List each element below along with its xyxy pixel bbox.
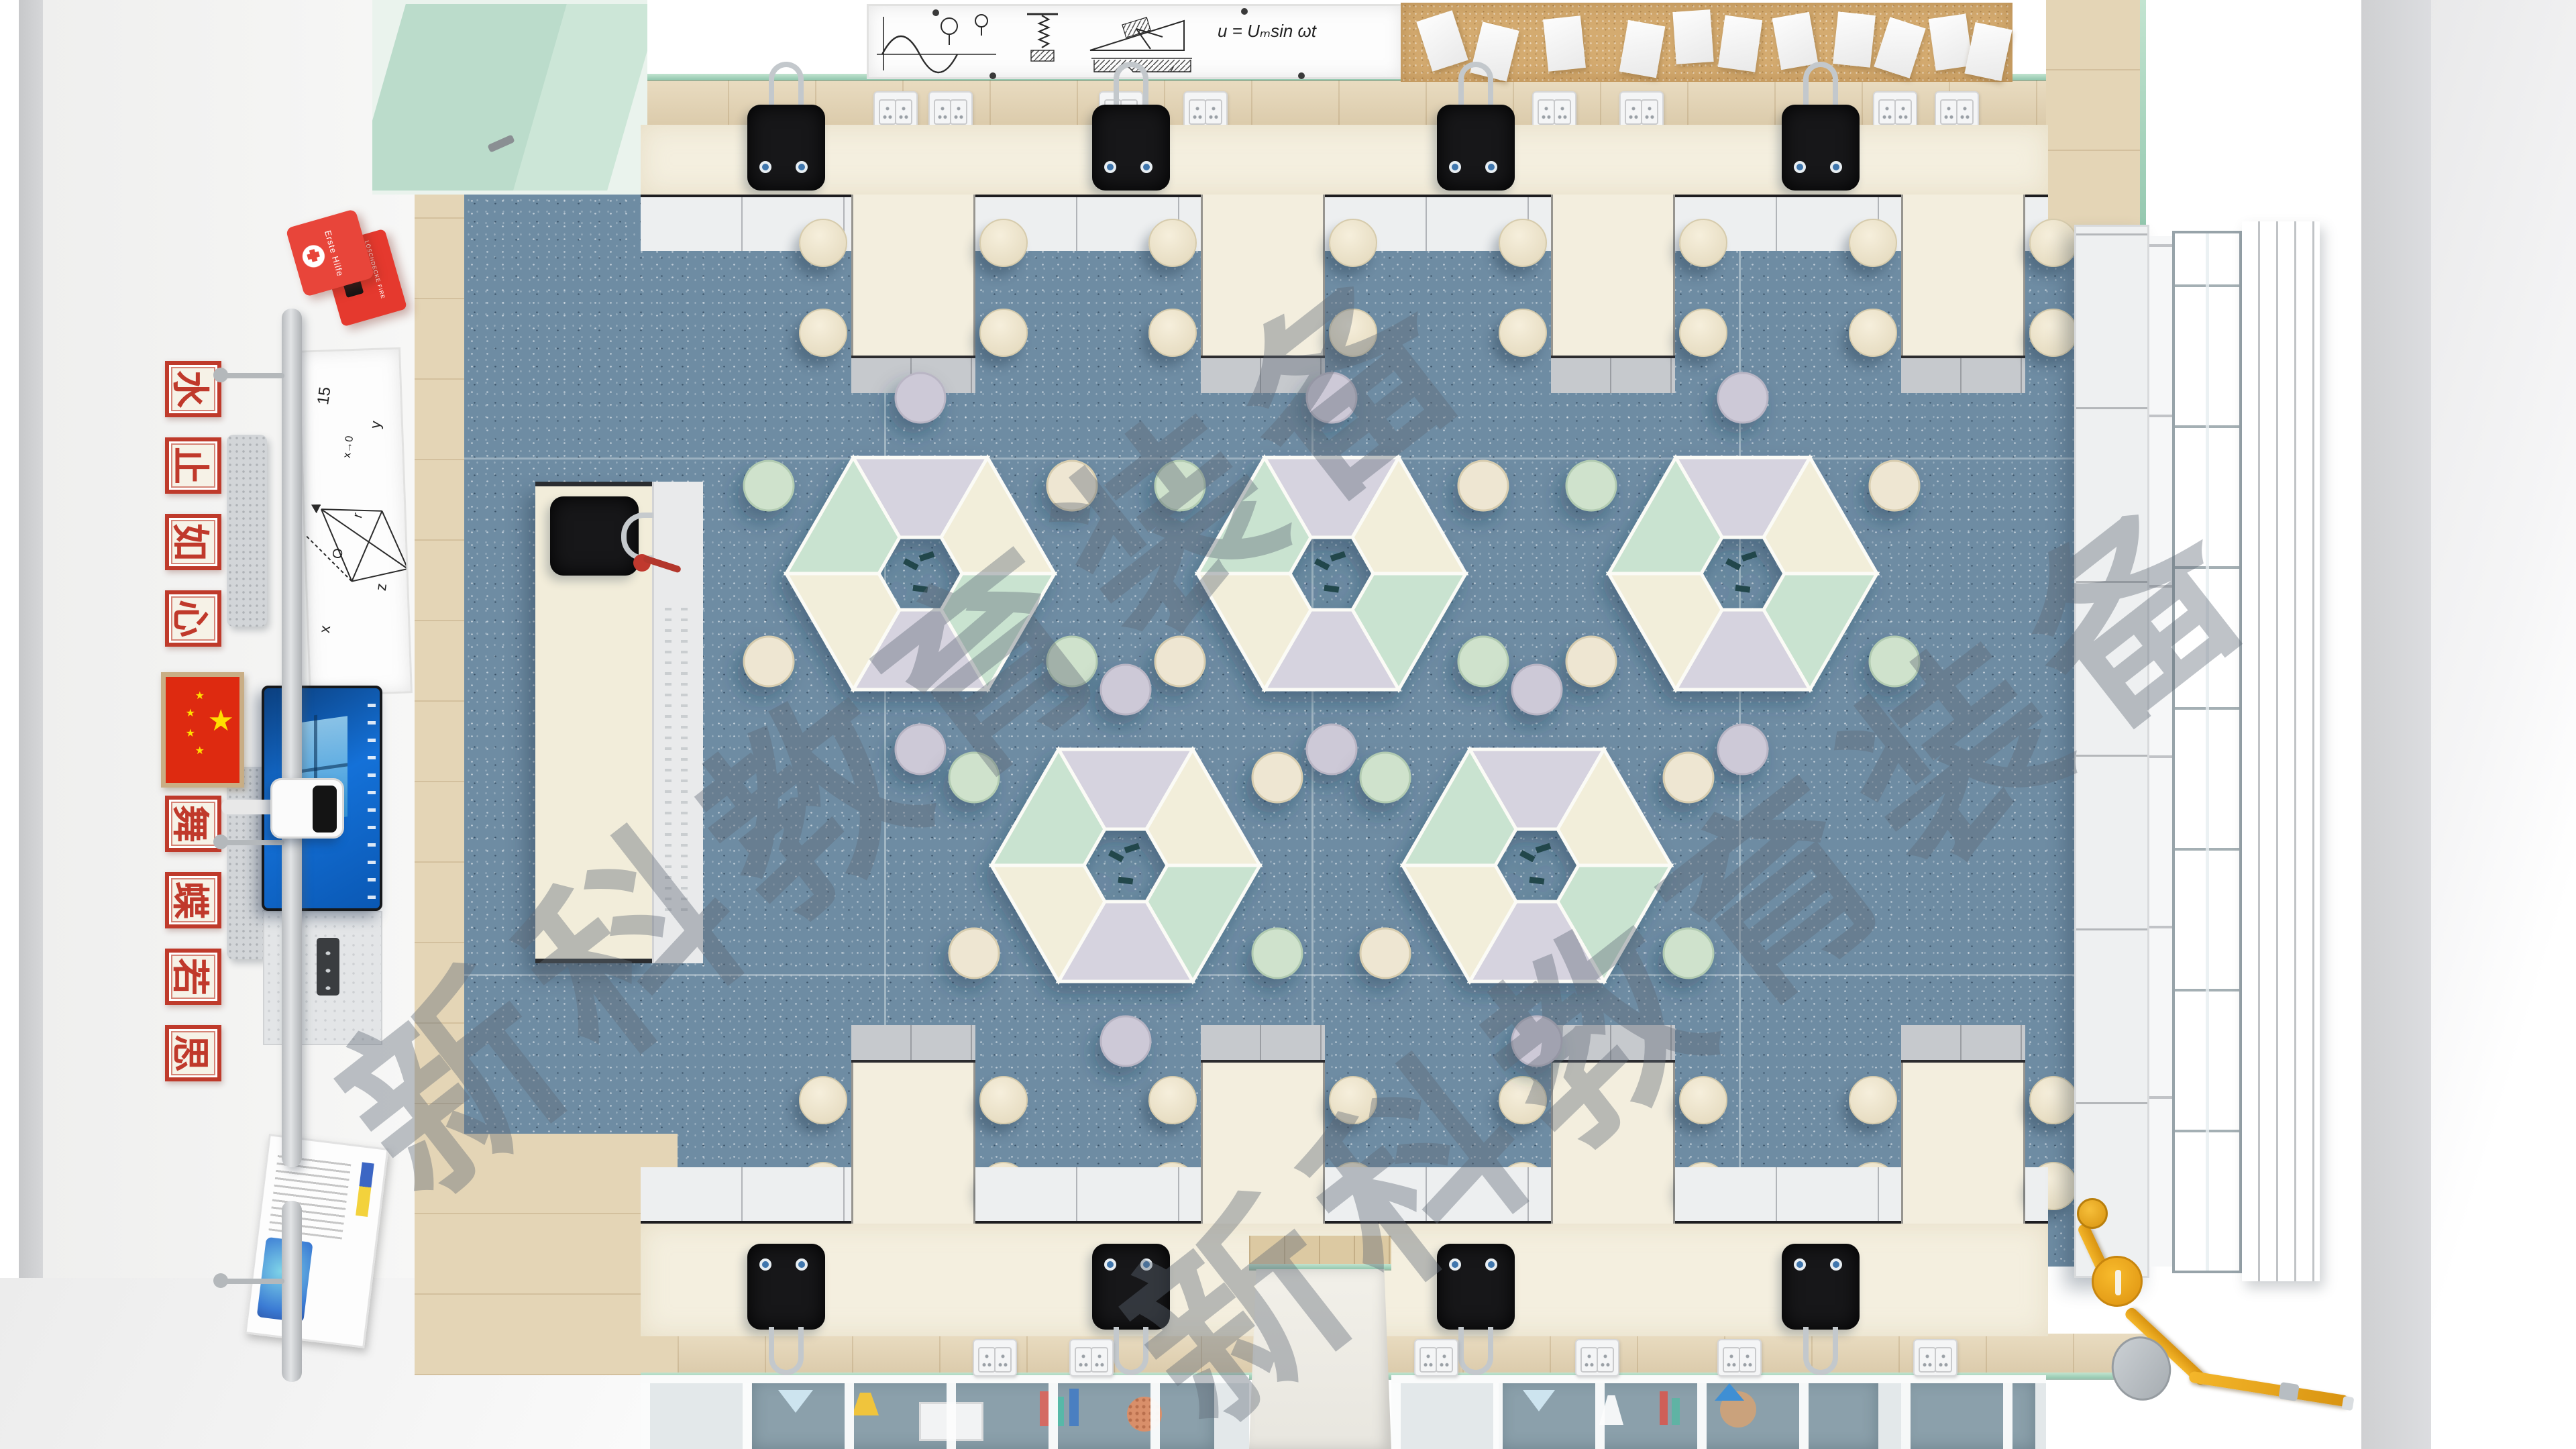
- valve-slot: [2115, 1270, 2121, 1295]
- lab-sink: [1092, 105, 1170, 191]
- vent-grille: [665, 602, 672, 911]
- wall-poster: [244, 1134, 388, 1348]
- wall-sign: 如: [165, 514, 221, 570]
- pipe-coupling: [2278, 1382, 2300, 1401]
- right-outer-wall: [2361, 0, 2431, 1449]
- rail-pin-cap: [213, 368, 228, 382]
- door-leaf: [1249, 1269, 1391, 1449]
- sign-char: 水: [169, 365, 217, 413]
- rail-pin-cap: [213, 1273, 228, 1288]
- wall-sign: 蝶: [165, 872, 221, 928]
- power-outlet: [1532, 91, 1576, 129]
- faucet-gooseneck: [1803, 62, 1838, 110]
- bench-side-panel: [652, 482, 703, 963]
- glass-display-cabinet: [2172, 231, 2242, 1273]
- flag-star-icon: ★: [195, 744, 205, 757]
- flag-star-icon: ★: [186, 706, 195, 720]
- faucet-gooseneck: [1114, 1327, 1148, 1375]
- faucet-gooseneck: [1458, 62, 1493, 110]
- teacher-demo-bench: [535, 482, 703, 963]
- aluminum-track-panel: [2242, 221, 2320, 1281]
- poster-accent: [356, 1162, 374, 1217]
- formula-text: u = Uₘsin ωt: [1218, 21, 1318, 41]
- power-outlet: [973, 1339, 1017, 1377]
- control-panel: [317, 938, 339, 996]
- math-sketch: y x z O r 15 x→0: [299, 350, 411, 695]
- china-flag: ★ ★ ★ ★ ★: [161, 672, 244, 788]
- top-right-glass-edge: [2140, 0, 2146, 231]
- board-number: 15: [314, 386, 334, 406]
- wall-sign: 止: [165, 437, 221, 494]
- power-outlet: [1414, 1339, 1458, 1377]
- power-outlet: [1935, 91, 1979, 129]
- flag-star-icon: ★: [195, 689, 205, 702]
- pinned-paper: [1543, 15, 1586, 71]
- pinned-paper: [1416, 10, 1468, 71]
- classroom-top-view: u = Uₘsin ωt: [0, 0, 2576, 1449]
- outer-right-wall-shadow: [2428, 0, 2576, 1449]
- sign-char: 止: [169, 441, 217, 490]
- board-rail-pole: [282, 1201, 302, 1382]
- corridor-band: [641, 1375, 1249, 1449]
- lab-sink: [747, 105, 825, 191]
- wall-sign: 思: [165, 1025, 221, 1081]
- hex-tables-layer: [464, 195, 2076, 1267]
- power-outlet: [1619, 91, 1664, 129]
- gas-pipe: [2188, 1371, 2349, 1407]
- poster-text-lines: [268, 1150, 352, 1240]
- window-mullions: [1391, 1375, 2046, 1449]
- cork-board: [1401, 3, 2012, 82]
- power-outlet: [928, 91, 973, 129]
- pinned-paper: [1874, 17, 1925, 78]
- sign-char: 如: [169, 518, 217, 566]
- rail-pin: [223, 840, 284, 845]
- faucet-gooseneck: [1114, 62, 1148, 110]
- faucet-gooseneck: [1803, 1327, 1838, 1375]
- desktop-icons: [368, 698, 376, 899]
- limit-label: x→0: [341, 435, 356, 459]
- math-whiteboard: y x z O r 15 x→0: [297, 347, 413, 696]
- faucet-gooseneck: [769, 62, 804, 110]
- wall-sign: 若: [165, 949, 221, 1005]
- axis-label: z: [372, 582, 390, 592]
- power-outlet: [1873, 91, 1917, 129]
- axis-label: y: [366, 420, 384, 429]
- corridor-band: [1391, 1375, 2046, 1449]
- power-outlet: [1069, 1339, 1114, 1377]
- sign-char: 思: [169, 1029, 217, 1077]
- pinned-paper: [1772, 12, 1819, 70]
- wall-sign: 心: [165, 590, 221, 647]
- speaker-unit: [227, 767, 267, 959]
- sign-char: 心: [169, 594, 217, 643]
- rail-pin-cap: [213, 835, 228, 849]
- lab-sink: [1437, 105, 1515, 191]
- glass-mullion: [2206, 233, 2209, 1271]
- pinned-paper: [1619, 20, 1666, 78]
- gas-pipe-flange: [2077, 1198, 2108, 1229]
- flag-star-icon: ★: [186, 727, 195, 740]
- board-rail-pole: [282, 309, 302, 1167]
- flag-field: ★ ★ ★ ★ ★: [166, 677, 239, 783]
- vent-grille: [681, 602, 688, 911]
- vector-label: r: [350, 511, 366, 519]
- flag-star-icon: ★: [208, 706, 234, 736]
- window-mullions: [641, 1375, 1249, 1449]
- left-wood-floor-strip: [415, 125, 464, 1265]
- right-storage-cabinet: [2074, 225, 2149, 1278]
- gas-valve-disc: [2092, 1256, 2143, 1307]
- sign-char: 舞: [169, 800, 217, 848]
- entry-glass-door: [372, 0, 647, 195]
- sign-char: 蝶: [169, 876, 217, 924]
- left-outer-wall: [19, 0, 43, 1449]
- patterned-cabinet: [263, 911, 382, 1045]
- rail-pin: [223, 373, 284, 378]
- origin-label: O: [330, 547, 346, 559]
- first-aid-label: Erste Hilfe: [323, 229, 345, 278]
- speaker-unit: [227, 435, 267, 627]
- power-outlet: [1183, 91, 1228, 129]
- wall-sign: 水: [165, 361, 221, 417]
- camera-head: [313, 786, 337, 833]
- pinned-paper: [1672, 9, 1713, 64]
- power-outlet: [1717, 1339, 1762, 1377]
- faucet-gooseneck: [1458, 1327, 1493, 1375]
- lab-sink: [1782, 105, 1860, 191]
- power-outlet: [873, 91, 918, 129]
- power-outlet: [1575, 1339, 1619, 1377]
- faucet-gooseneck: [769, 1327, 804, 1375]
- window-sill: [641, 1375, 1249, 1383]
- pinned-paper: [1965, 22, 2012, 81]
- rail-pin: [223, 1279, 284, 1284]
- document-camera: [270, 778, 344, 839]
- sign-char: 若: [169, 953, 217, 1001]
- pinned-paper: [1718, 15, 1762, 72]
- pinned-paper: [1833, 11, 1876, 67]
- axis-label: x: [316, 625, 333, 634]
- power-outlet: [1913, 1339, 1957, 1377]
- pipe-end-cap: [2342, 1396, 2355, 1411]
- right-open-shelf: [2149, 236, 2172, 1267]
